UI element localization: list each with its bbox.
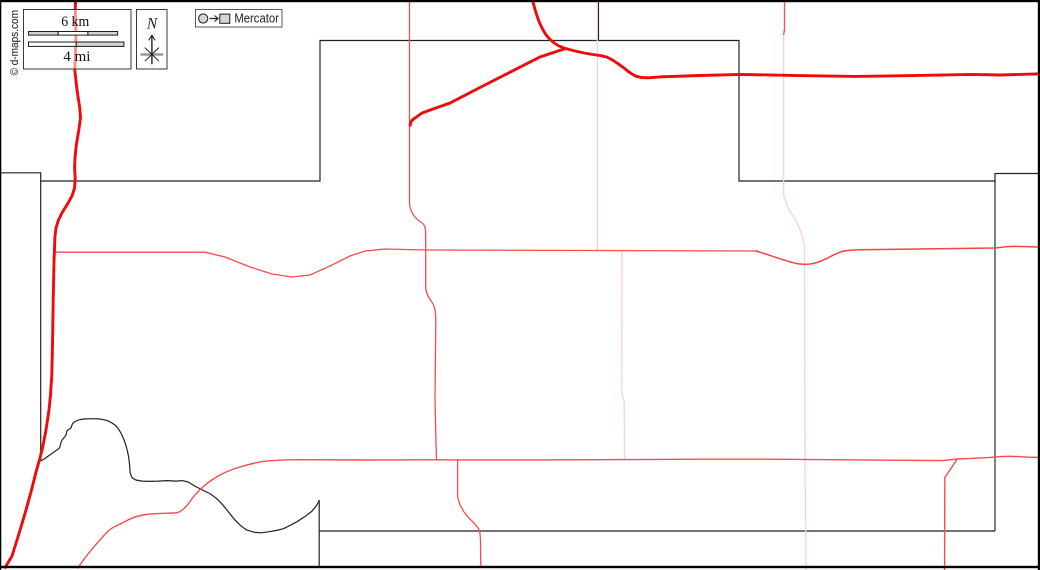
svg-text:Mercator: Mercator <box>234 12 279 26</box>
svg-text:6 km: 6 km <box>61 14 89 30</box>
svg-text:N: N <box>146 15 159 32</box>
svg-text:© d-maps.com: © d-maps.com <box>9 10 21 76</box>
svg-text:4 mi: 4 mi <box>63 49 90 65</box>
